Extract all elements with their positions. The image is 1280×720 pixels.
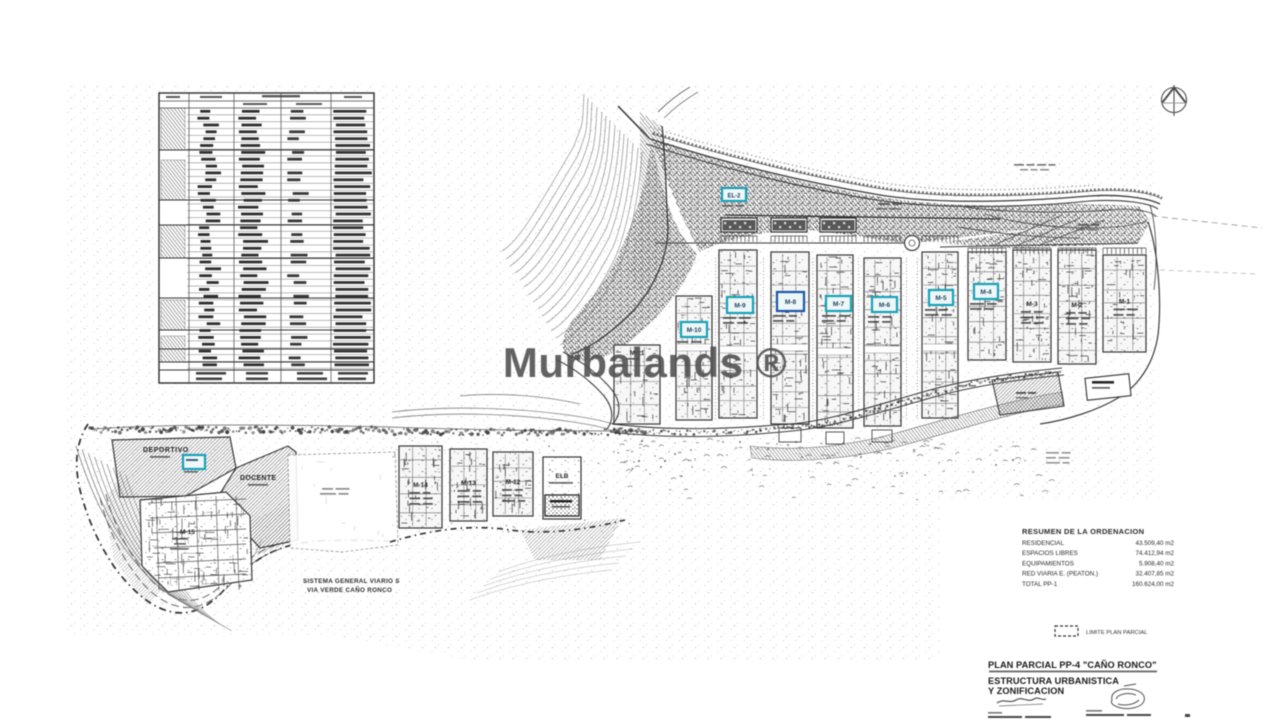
svg-text:M-13: M-13: [461, 480, 476, 487]
svg-text:C-2: C-2: [783, 424, 794, 431]
svg-text:ESPACIOS LIBRES: ESPACIOS LIBRES: [1022, 550, 1078, 557]
svg-text:ESTRUCTURA URBANISTICA: ESTRUCTURA URBANISTICA: [988, 676, 1119, 686]
svg-text:SISTEMA GENERAL VIARIO S: SISTEMA GENERAL VIARIO S: [303, 578, 400, 585]
svg-text:M-1: M-1: [1119, 299, 1131, 306]
svg-text:Murbalands ®: Murbalands ®: [503, 339, 787, 386]
svg-text:VIA VERDE CAÑO RONCO: VIA VERDE CAÑO RONCO: [307, 585, 392, 594]
svg-text:Y ZONIFICACION: Y ZONIFICACION: [988, 686, 1065, 696]
svg-text:TOTAL PP-1: TOTAL PP-1: [1022, 581, 1058, 588]
svg-text:160.624,00 m2: 160.624,00 m2: [1132, 581, 1175, 588]
svg-text:RESIDENCIAL: RESIDENCIAL: [1022, 540, 1064, 547]
svg-text:M-6: M-6: [879, 302, 891, 309]
svg-text:RED VIARIA E. (PEATON.): RED VIARIA E. (PEATON.): [1022, 571, 1098, 578]
svg-text:DOCENTE: DOCENTE: [240, 475, 276, 482]
svg-text:M-4: M-4: [980, 289, 992, 296]
svg-text:5.908,40 m2: 5.908,40 m2: [1139, 560, 1175, 567]
svg-text:M-3: M-3: [1026, 301, 1038, 308]
svg-text:DEPORTIVO: DEPORTIVO: [143, 447, 189, 454]
svg-text:M-2: M-2: [1071, 302, 1083, 309]
svg-text:32.407,85 m2: 32.407,85 m2: [1135, 571, 1174, 578]
svg-text:M-5: M-5: [935, 295, 947, 302]
svg-text:M-15: M-15: [180, 529, 195, 536]
svg-text:M-9: M-9: [734, 303, 746, 310]
svg-text:M-8: M-8: [785, 299, 797, 306]
svg-text:M-7: M-7: [833, 301, 845, 308]
svg-text:74.412,94 m2: 74.412,94 m2: [1135, 550, 1174, 557]
svg-text:RESUMEN DE LA ORDENACION: RESUMEN DE LA ORDENACION: [1022, 527, 1144, 536]
svg-text:EL-2: EL-2: [727, 194, 741, 200]
svg-text:M-14: M-14: [413, 482, 428, 489]
svg-text:43.509,40 m2: 43.509,40 m2: [1135, 540, 1174, 547]
svg-text:M-10: M-10: [687, 327, 702, 334]
svg-text:EQUIPAMIENTOS: EQUIPAMIENTOS: [1022, 560, 1074, 567]
svg-text:LIMITE PLAN PARCIAL: LIMITE PLAN PARCIAL: [1086, 630, 1148, 636]
svg-text:PLAN PARCIAL PP-4 "CAÑO RONCO": PLAN PARCIAL PP-4 "CAÑO RONCO": [988, 660, 1157, 670]
